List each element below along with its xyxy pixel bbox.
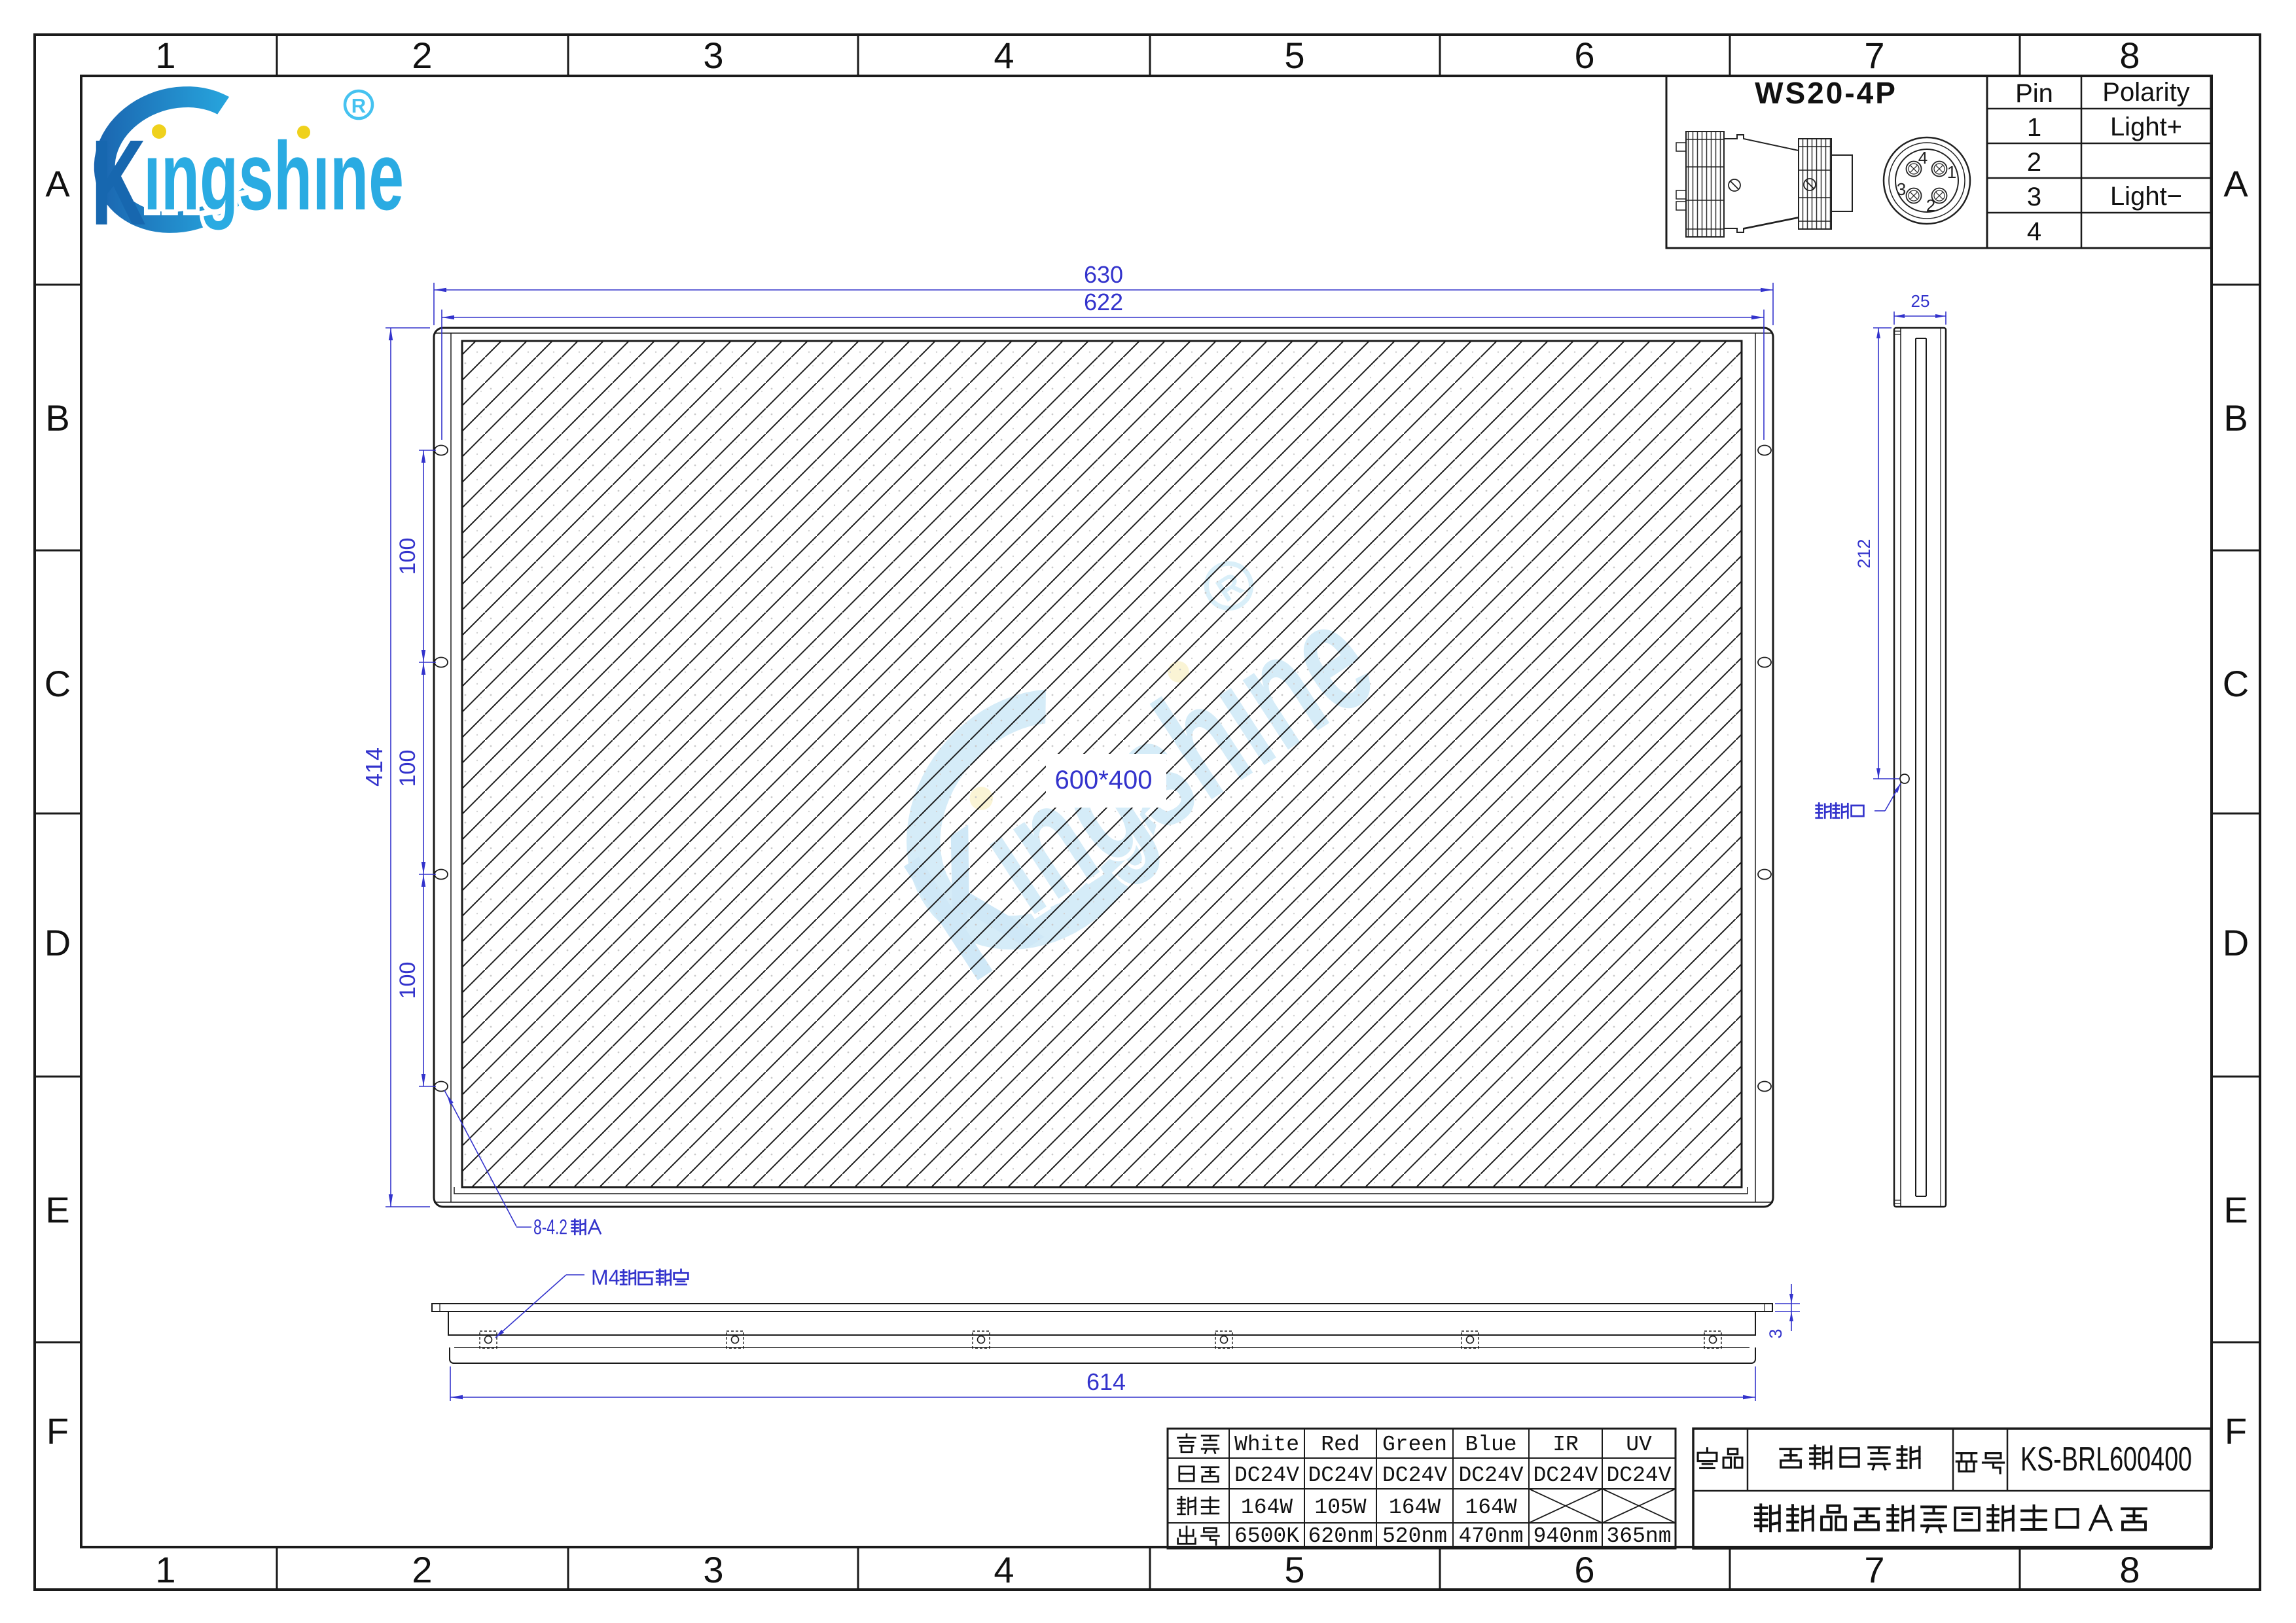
svg-text:212: 212 [1854,539,1874,568]
svg-text:2: 2 [412,1549,432,1590]
svg-text:1: 1 [155,1549,175,1590]
svg-text:8: 8 [2119,1549,2140,1590]
svg-text:164W: 164W [1389,1495,1441,1520]
svg-text:UV: UV [1626,1433,1652,1457]
svg-text:940nm: 940nm [1533,1524,1598,1548]
svg-text:E: E [45,1189,69,1230]
svg-text:3: 3 [703,1549,723,1590]
svg-text:B: B [45,397,69,438]
svg-text:105W: 105W [1314,1495,1366,1520]
svg-text:4: 4 [2027,217,2041,246]
svg-text:164W: 164W [1465,1495,1516,1520]
svg-text:A: A [45,163,70,204]
svg-text:2: 2 [2027,148,2041,177]
svg-text:3: 3 [703,35,723,76]
svg-text:1: 1 [155,35,175,76]
svg-text:3: 3 [1766,1329,1785,1338]
svg-text:7: 7 [1864,35,1884,76]
svg-text:E: E [2223,1189,2248,1230]
svg-text:White: White [1234,1433,1299,1457]
svg-text:B: B [2223,397,2248,438]
svg-text:DC24V: DC24V [1533,1463,1598,1488]
svg-text:5: 5 [1284,35,1304,76]
svg-text:4: 4 [994,1549,1014,1590]
svg-text:D: D [2223,922,2249,963]
svg-text:A: A [2223,163,2248,204]
svg-text:Pin: Pin [2015,79,2053,108]
svg-text:M4: M4 [591,1266,620,1289]
svg-text:1: 1 [1947,162,1956,182]
svg-text:Polarity: Polarity [2102,78,2189,107]
svg-text:100: 100 [395,962,420,999]
svg-text:F: F [2225,1410,2247,1452]
svg-text:6500K: 6500K [1234,1524,1299,1548]
svg-text:DC24V: DC24V [1606,1463,1671,1488]
svg-text:WS20-4P: WS20-4P [1755,76,1897,110]
svg-text:614: 614 [1086,1368,1126,1395]
svg-text:8-4.2: 8-4.2 [533,1215,567,1239]
svg-text:164W: 164W [1241,1495,1293,1520]
svg-text:3: 3 [2027,183,2041,211]
svg-text:8: 8 [2119,35,2140,76]
svg-text:K: K [91,115,146,251]
svg-text:6: 6 [1574,1549,1594,1590]
svg-text:7: 7 [1864,1549,1884,1590]
svg-text:2: 2 [1926,196,1935,215]
svg-text:100: 100 [395,538,420,575]
svg-text:630: 630 [1084,261,1123,288]
svg-text:600*400: 600*400 [1054,766,1152,794]
svg-text:F: F [46,1410,69,1452]
svg-text:IR: IR [1552,1433,1579,1457]
svg-text:6: 6 [1574,35,1594,76]
svg-text:Green: Green [1382,1433,1447,1457]
svg-text:Light+: Light+ [2110,113,2182,141]
svg-text:Blue: Blue [1465,1433,1516,1457]
svg-text:414: 414 [361,747,387,787]
svg-text:DC24V: DC24V [1234,1463,1299,1488]
svg-text:3: 3 [1897,179,1906,199]
svg-text:520nm: 520nm [1382,1524,1447,1548]
svg-text:470nm: 470nm [1458,1524,1523,1548]
svg-text:100: 100 [395,750,420,787]
svg-text:5: 5 [1284,1549,1304,1590]
svg-text:1: 1 [2027,113,2041,142]
svg-text:365nm: 365nm [1606,1524,1671,1548]
svg-text:DC24V: DC24V [1458,1463,1523,1488]
svg-text:C: C [45,663,71,704]
svg-text:2: 2 [412,35,432,76]
svg-text:622: 622 [1084,289,1123,315]
svg-text:Light−: Light− [2110,182,2182,211]
svg-text:KS-BRL600400: KS-BRL600400 [2020,1440,2192,1478]
svg-text:25: 25 [1911,291,1930,311]
svg-text:DC24V: DC24V [1308,1463,1372,1488]
svg-text:ıngshıne: ıngshıne [143,122,404,230]
svg-text:C: C [2223,663,2249,704]
svg-text:Red: Red [1321,1433,1359,1457]
svg-text:620nm: 620nm [1308,1524,1372,1548]
svg-text:4: 4 [994,35,1014,76]
svg-text:4: 4 [1918,148,1928,168]
svg-text:R: R [351,94,366,117]
svg-text:DC24V: DC24V [1382,1463,1447,1488]
svg-text:D: D [45,922,71,963]
